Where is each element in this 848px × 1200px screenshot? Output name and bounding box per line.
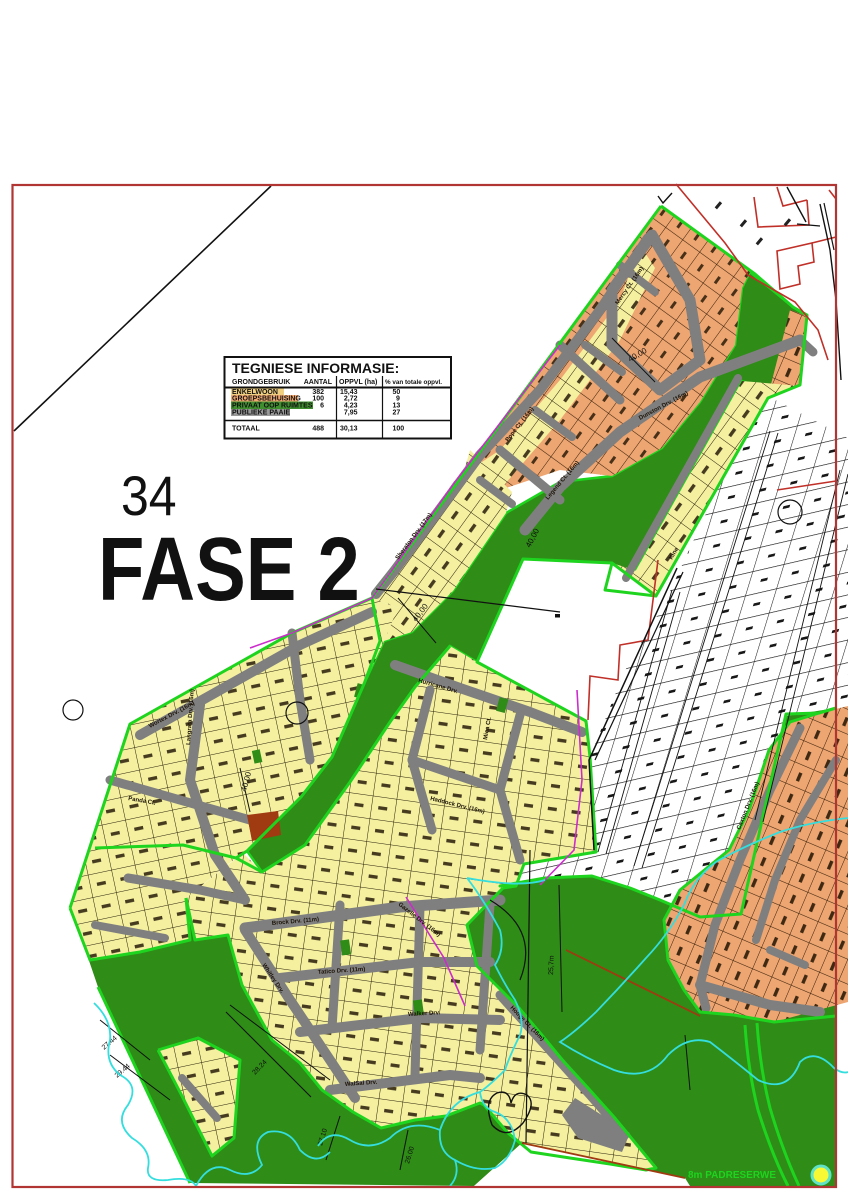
svg-text:8m PADRESERWE: 8m PADRESERWE (688, 1170, 776, 1181)
svg-text:FASE 2: FASE 2 (98, 518, 360, 620)
svg-text:OPPVL (ha): OPPVL (ha) (339, 379, 377, 386)
svg-text:TOTAAL: TOTAAL (232, 426, 260, 433)
svg-text:100: 100 (393, 426, 405, 433)
svg-text:13: 13 (393, 403, 401, 410)
svg-text:9: 9 (396, 396, 400, 403)
svg-text:AANTAL: AANTAL (304, 379, 333, 386)
svg-text:488: 488 (312, 426, 324, 433)
svg-text:PUBLIEKE PAAIE: PUBLIEKE PAAIE (232, 410, 291, 417)
svg-text:GROEPSBEHUISING: GROEPSBEHUISING (232, 396, 301, 403)
svg-text:TEGNIESE INFORMASIE:: TEGNIESE INFORMASIE: (232, 360, 399, 376)
svg-text:25,7m: 25,7m (548, 955, 556, 975)
svg-text:2,72: 2,72 (344, 396, 358, 403)
svg-text:7,95: 7,95 (344, 410, 358, 417)
svg-text:% van totale oppvl.: % van totale oppvl. (385, 379, 442, 386)
svg-text:6: 6 (320, 403, 324, 410)
svg-text:27: 27 (393, 410, 401, 417)
svg-text:GRONDGEBRUIK: GRONDGEBRUIK (232, 379, 290, 386)
svg-text:PRIVAAT OOP RUIMTES: PRIVAAT OOP RUIMTES (232, 403, 313, 410)
svg-text:4,23: 4,23 (344, 403, 358, 410)
svg-text:30,13: 30,13 (340, 426, 358, 433)
svg-text:100: 100 (312, 396, 324, 403)
